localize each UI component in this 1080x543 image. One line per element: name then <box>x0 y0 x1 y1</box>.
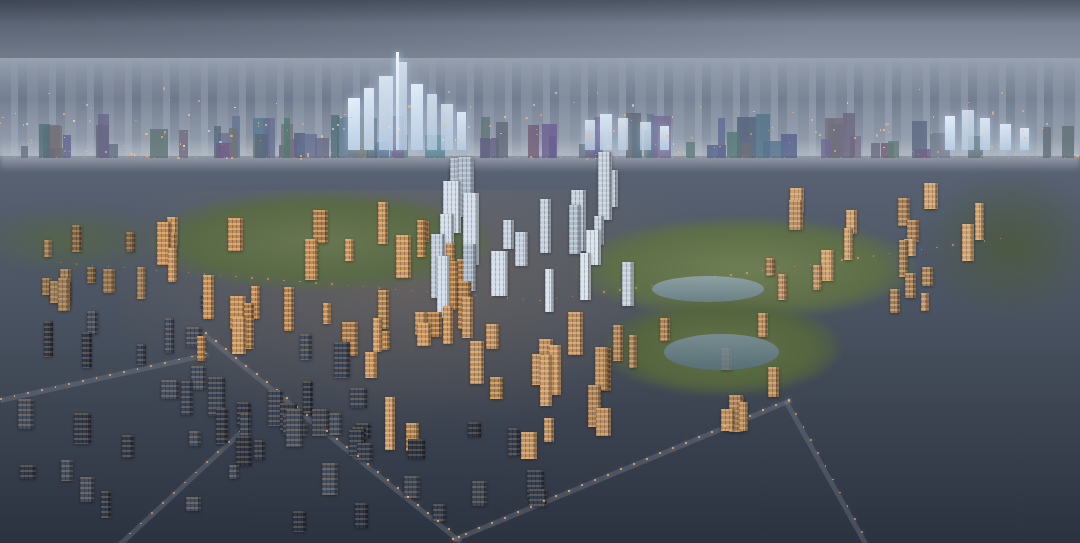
building <box>189 431 201 447</box>
building <box>433 504 446 523</box>
city-light <box>854 137 856 139</box>
city-light <box>632 104 634 106</box>
city-light <box>749 116 750 117</box>
street-light <box>367 463 369 465</box>
distant-building <box>763 141 783 158</box>
city-light <box>130 153 132 155</box>
building <box>126 232 135 253</box>
street-light <box>619 289 620 290</box>
city-light <box>468 126 470 128</box>
street-light <box>635 287 636 288</box>
building <box>922 267 933 285</box>
city-light <box>977 121 978 122</box>
street-light <box>299 281 300 282</box>
city-light <box>408 105 410 107</box>
street-light <box>530 506 532 508</box>
city-light <box>188 114 190 116</box>
street-light <box>315 282 316 283</box>
street-light <box>810 264 811 265</box>
city-light <box>719 146 720 147</box>
street-light <box>109 374 111 376</box>
street-light <box>952 244 953 245</box>
street-light <box>1036 157 1037 158</box>
building <box>232 317 247 354</box>
city-light <box>533 104 535 106</box>
city-light <box>411 139 412 140</box>
building <box>101 491 111 518</box>
city-light <box>1001 92 1003 94</box>
city-light <box>86 104 88 106</box>
distant-building <box>888 141 899 158</box>
street-light <box>794 266 795 267</box>
building <box>598 152 612 221</box>
city-light <box>30 139 32 141</box>
building <box>165 318 174 352</box>
street-light <box>162 502 164 504</box>
street-light <box>377 471 379 473</box>
scenery-layer <box>0 0 1080 543</box>
aerial-render-scene: 南大路 PARK-TOD(在建中) 约250米城市新地标 中环麓岛 溪谷公园 (… <box>0 0 1080 543</box>
building <box>404 476 420 498</box>
city-light <box>249 150 250 151</box>
building <box>789 200 803 230</box>
building <box>739 402 749 431</box>
building <box>408 439 425 459</box>
street-light <box>357 455 359 457</box>
city-light <box>2 117 3 118</box>
building <box>284 287 294 331</box>
street-light <box>68 383 70 385</box>
city-light <box>595 157 596 158</box>
building <box>322 463 338 495</box>
street-light <box>1050 157 1051 158</box>
building <box>80 477 95 502</box>
city-light <box>753 111 755 113</box>
building <box>503 220 514 249</box>
city-light <box>105 151 107 153</box>
building <box>813 265 822 291</box>
street-light <box>795 413 797 415</box>
city-light <box>442 139 444 141</box>
building <box>44 321 54 357</box>
street-light <box>220 275 221 276</box>
street-light <box>228 441 230 443</box>
city-light <box>819 134 821 136</box>
street-light <box>762 270 763 271</box>
building <box>622 262 634 306</box>
building <box>491 251 508 295</box>
building <box>168 248 177 282</box>
street-light <box>540 300 541 301</box>
building <box>899 240 908 277</box>
street-light <box>539 300 540 301</box>
city-light <box>15 113 16 114</box>
street-light <box>76 263 77 264</box>
street-light <box>82 380 84 382</box>
city-light <box>1042 128 1044 130</box>
city-light <box>396 125 398 127</box>
street-light <box>700 157 701 158</box>
street-light <box>124 267 125 268</box>
street-light <box>698 436 700 438</box>
street-light <box>1000 238 1001 239</box>
building <box>329 413 342 435</box>
building <box>203 275 213 319</box>
street-light <box>347 285 348 286</box>
street-light <box>28 157 29 158</box>
street-light <box>873 255 874 256</box>
city-light <box>276 103 277 104</box>
city-light <box>398 136 400 138</box>
building <box>396 235 411 278</box>
street-light <box>267 278 268 279</box>
building <box>197 336 206 361</box>
city-light <box>700 106 701 107</box>
distant-building <box>542 124 557 158</box>
street-light <box>475 295 476 296</box>
street-light <box>448 528 450 530</box>
distant-building <box>718 118 725 158</box>
street-light <box>195 472 197 474</box>
building <box>61 460 73 482</box>
street-light <box>395 289 396 290</box>
street-light <box>556 298 557 299</box>
city-light <box>772 127 773 128</box>
building <box>540 355 552 406</box>
city-light <box>178 157 180 159</box>
distant-building <box>528 125 540 158</box>
city-light <box>344 114 345 115</box>
city-light <box>31 142 33 144</box>
distant-building <box>331 115 339 158</box>
street-light <box>151 512 153 514</box>
lit-tower <box>348 98 360 150</box>
city-light <box>183 145 185 147</box>
distant-building <box>255 134 268 158</box>
building <box>778 274 787 300</box>
lit-tower <box>379 76 393 150</box>
city-light <box>982 130 984 132</box>
street-light <box>936 247 937 248</box>
city-light <box>28 143 29 144</box>
city-light <box>145 133 147 135</box>
street-light <box>379 287 380 288</box>
city-light <box>587 90 588 91</box>
city-light <box>370 139 372 141</box>
building <box>161 380 179 399</box>
building <box>20 465 36 479</box>
street-light <box>778 268 779 269</box>
street-light <box>507 297 508 298</box>
building <box>540 199 551 253</box>
street-light <box>984 240 985 241</box>
city-light <box>595 154 597 156</box>
lit-tower <box>1000 124 1011 150</box>
city-light <box>142 145 143 146</box>
street-light <box>994 157 995 158</box>
street-light <box>27 392 29 394</box>
city-light <box>1024 137 1025 138</box>
zoumatang-lake <box>664 334 779 370</box>
building <box>758 313 768 337</box>
city-light <box>448 91 450 93</box>
street-light <box>283 280 284 281</box>
street-light <box>572 296 573 297</box>
building <box>137 344 146 365</box>
building <box>18 399 33 429</box>
building <box>443 306 453 344</box>
street-light <box>150 365 152 367</box>
street-light <box>523 299 524 300</box>
street-light <box>491 296 492 297</box>
building <box>975 203 985 241</box>
street-light <box>1078 157 1079 158</box>
city-light <box>379 145 380 146</box>
city-light <box>346 110 348 112</box>
street-light <box>476 157 477 158</box>
city-light <box>373 89 375 91</box>
street-light <box>788 400 790 402</box>
building <box>472 481 487 506</box>
distant-building <box>1062 126 1074 158</box>
street-light <box>306 414 308 416</box>
street-light <box>331 283 332 284</box>
building <box>216 408 228 444</box>
city-light <box>573 102 575 104</box>
city-light <box>811 119 813 121</box>
street-light <box>803 426 805 428</box>
city-light <box>84 102 85 103</box>
city-light <box>234 107 235 108</box>
distant-building <box>727 132 739 158</box>
street-light <box>205 332 207 334</box>
distant-building <box>496 122 509 158</box>
street-light <box>0 398 2 400</box>
building <box>569 205 581 254</box>
building <box>515 232 528 266</box>
city-light <box>1022 110 1024 112</box>
city-light <box>146 156 148 158</box>
building <box>345 239 354 261</box>
street-light <box>672 157 673 158</box>
city-light <box>883 129 885 131</box>
building <box>508 428 520 456</box>
street-light <box>235 276 236 277</box>
city-light <box>888 131 890 133</box>
distant-building <box>284 118 290 158</box>
city-light <box>26 123 28 125</box>
distant-building <box>108 144 119 158</box>
building <box>924 183 938 210</box>
street-light <box>921 249 922 250</box>
building <box>462 297 474 338</box>
building <box>766 258 775 275</box>
street-light <box>603 291 604 292</box>
lit-tower <box>364 88 374 150</box>
city-light <box>198 100 199 101</box>
street-light <box>156 270 157 271</box>
central-park-lake <box>652 276 764 302</box>
building <box>544 418 554 442</box>
building <box>122 435 134 458</box>
building <box>595 347 608 390</box>
building <box>385 397 395 450</box>
distant-building <box>871 143 880 158</box>
building <box>486 324 499 349</box>
street-light <box>452 538 454 540</box>
building <box>721 409 735 430</box>
city-light <box>331 152 332 153</box>
street-light <box>607 474 609 476</box>
city-light <box>911 151 913 153</box>
street-light <box>168 157 169 158</box>
city-light <box>613 130 615 132</box>
building <box>470 341 484 384</box>
street-light <box>427 291 428 292</box>
building <box>254 440 264 460</box>
city-light <box>302 123 304 125</box>
building <box>417 323 431 346</box>
lit-tower <box>945 116 955 150</box>
street-light <box>646 458 648 460</box>
distant-building <box>301 134 317 158</box>
city-light <box>962 113 963 114</box>
road-surface <box>118 430 243 543</box>
building <box>228 218 243 252</box>
building <box>303 381 313 415</box>
city-light <box>981 155 983 157</box>
distant-building <box>781 134 797 158</box>
street-light <box>491 522 493 524</box>
building <box>529 489 547 507</box>
city-light <box>300 158 302 160</box>
street-light <box>952 157 953 158</box>
building <box>580 253 591 301</box>
street-light <box>889 253 890 254</box>
building <box>921 293 929 312</box>
street-light <box>173 492 175 494</box>
building <box>768 367 778 396</box>
city-light <box>226 157 228 159</box>
city-light <box>230 135 232 137</box>
city-light <box>340 117 341 118</box>
lit-tower <box>962 110 974 150</box>
city-light <box>540 114 542 116</box>
building <box>191 366 207 390</box>
city-light <box>134 154 135 155</box>
street-light <box>411 290 412 291</box>
street-light <box>108 266 109 267</box>
street-light <box>588 294 589 295</box>
city-light <box>91 153 92 154</box>
city-light <box>691 137 693 139</box>
street-light <box>420 157 421 158</box>
building <box>962 224 974 261</box>
building <box>305 239 319 280</box>
street-light <box>672 447 674 449</box>
street-light <box>206 461 208 463</box>
city-light <box>937 151 939 153</box>
city-light <box>91 108 92 109</box>
street-light <box>711 431 713 433</box>
city-light <box>208 130 210 132</box>
building <box>844 228 853 259</box>
city-light <box>169 99 170 100</box>
city-light <box>444 109 445 110</box>
street-light <box>518 157 519 158</box>
distant-building <box>39 124 50 158</box>
city-light <box>991 146 993 148</box>
building <box>660 318 670 341</box>
city-light <box>89 120 91 122</box>
city-light <box>992 112 994 114</box>
city-light <box>750 133 751 134</box>
street-light <box>857 257 858 258</box>
distant-building <box>229 128 237 158</box>
street-light <box>417 504 419 506</box>
distant-building <box>1043 127 1051 158</box>
street-light <box>140 523 142 525</box>
building <box>74 413 91 444</box>
street-light <box>825 465 827 467</box>
city-light <box>470 106 472 108</box>
building <box>357 443 373 462</box>
street-light <box>1022 157 1023 158</box>
city-light <box>63 113 65 115</box>
street-light <box>210 157 211 158</box>
building <box>103 269 115 293</box>
street-light <box>217 451 219 453</box>
street-light <box>407 496 409 498</box>
street-light <box>123 371 125 373</box>
city-light <box>887 123 889 125</box>
lit-tower <box>640 122 651 150</box>
street-light <box>465 533 467 535</box>
building <box>355 503 368 528</box>
building <box>350 388 366 409</box>
building <box>821 250 834 281</box>
building <box>890 289 900 313</box>
street-light <box>140 157 141 158</box>
distant-building <box>150 129 168 158</box>
street-light <box>685 442 687 444</box>
street-light <box>126 157 127 158</box>
building <box>568 312 583 355</box>
city-light <box>504 116 506 118</box>
city-light <box>968 102 970 104</box>
city-light <box>0 122 1 123</box>
building <box>58 278 70 312</box>
road-surface <box>784 400 868 543</box>
building <box>365 352 377 379</box>
city-light <box>469 141 470 142</box>
city-light <box>597 92 599 94</box>
city-light <box>666 135 668 137</box>
building <box>293 511 305 533</box>
street-light <box>574 157 575 158</box>
city-light <box>23 124 24 125</box>
building <box>373 318 382 352</box>
street-light <box>14 157 15 158</box>
street-light <box>41 389 43 391</box>
city-light <box>588 135 590 137</box>
street-light <box>164 362 166 364</box>
city-light <box>337 124 338 125</box>
street-light <box>196 157 197 158</box>
city-light <box>880 129 881 130</box>
building <box>490 377 503 400</box>
city-light <box>555 92 557 94</box>
